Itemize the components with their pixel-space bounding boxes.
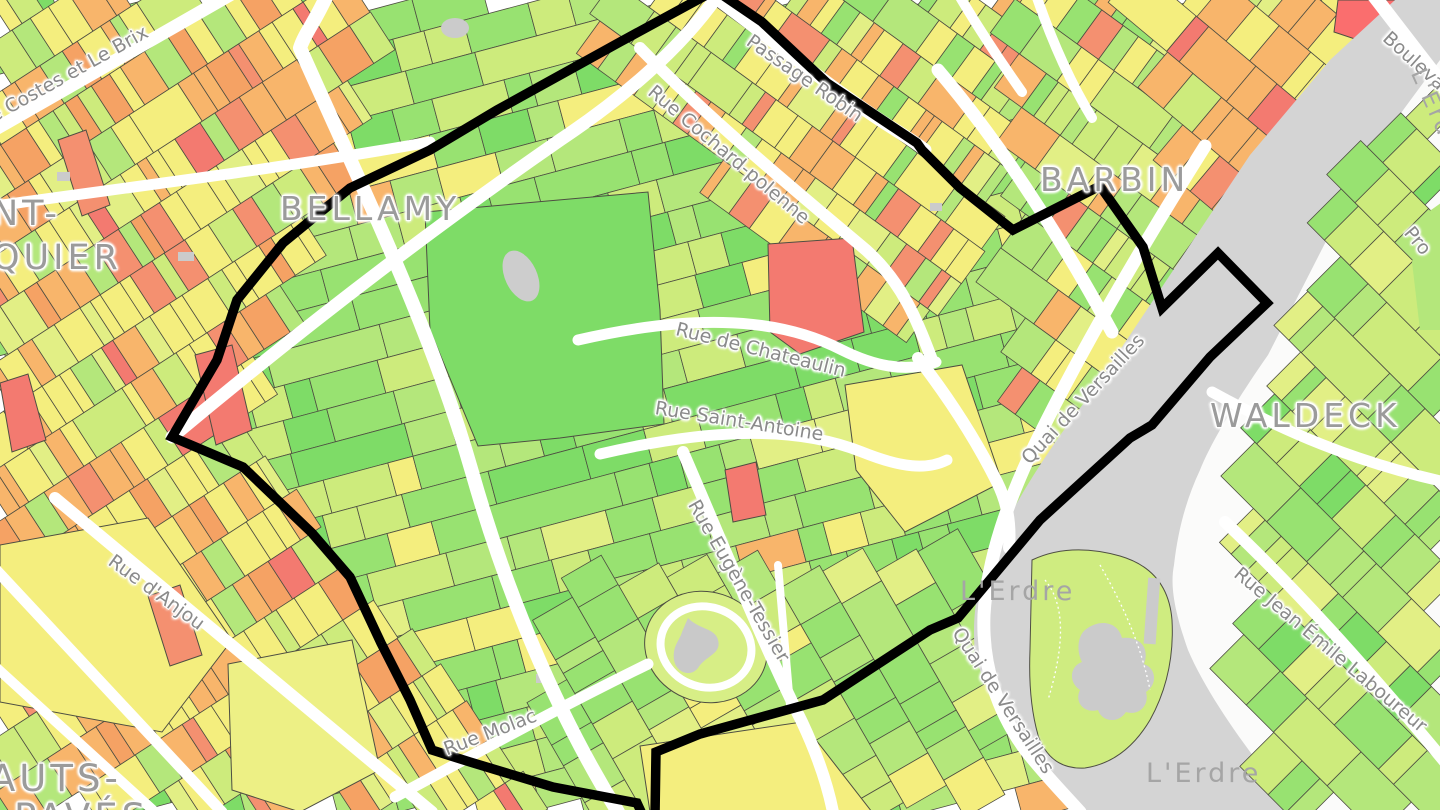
- map-viewport: BELLAMYBARBINWALDECKNT-QUIERAUTS-PAVÉSRu…: [0, 0, 1440, 810]
- district-label: BELLAMY: [280, 192, 460, 227]
- water-label: L'Erdre: [960, 578, 1075, 606]
- district-label: NT-: [0, 196, 61, 233]
- district-label: AUTS-: [0, 760, 122, 799]
- district-label: WALDECK: [1210, 399, 1401, 434]
- district-label: BARBIN: [1040, 163, 1189, 198]
- district-label: PAVÉS: [14, 799, 149, 810]
- water-label: L'Erdre: [1146, 760, 1261, 788]
- district-label: QUIER: [0, 240, 122, 277]
